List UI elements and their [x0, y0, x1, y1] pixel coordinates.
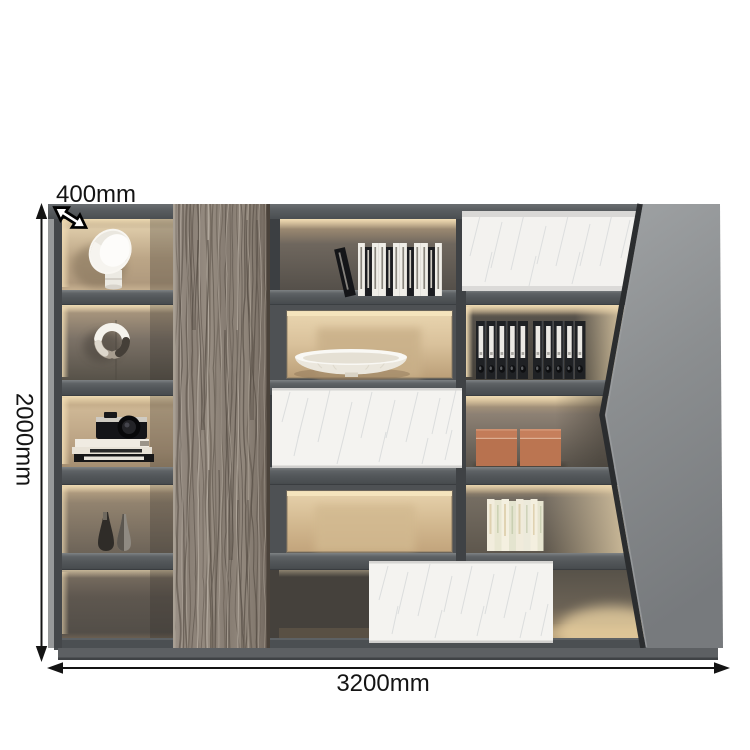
- svg-text:2000mm: 2000mm: [10, 393, 37, 486]
- svg-text:400mm: 400mm: [56, 181, 136, 208]
- svg-text:3200mm: 3200mm: [336, 670, 429, 697]
